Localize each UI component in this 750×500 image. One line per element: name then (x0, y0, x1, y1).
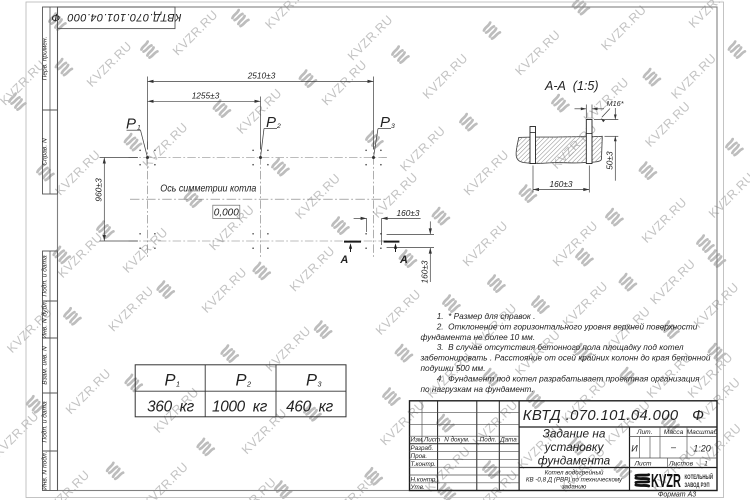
svg-text:И: И (631, 444, 638, 454)
svg-text:–: – (670, 442, 677, 452)
svg-text:Р: Р (165, 371, 176, 389)
svg-text:Перв. примен.: Перв. примен. (42, 36, 49, 80)
svg-text:Ось симметрии котла: Ось симметрии котла (160, 182, 256, 194)
svg-text:Р: Р (236, 371, 247, 389)
svg-text:ЗАВОД РЭП: ЗАВОД РЭП (685, 482, 710, 489)
svg-text:Формат А3: Формат А3 (658, 492, 696, 499)
svg-text:Пров.: Пров. (411, 453, 428, 460)
svg-text:4. Фундамент под котел разраб: 4. Фундамент под котел разрабатывает про… (437, 374, 700, 383)
svg-text:N докум.: N докум. (444, 436, 469, 444)
svg-text:Задание на: Задание на (543, 427, 606, 441)
svg-text:Подп.: Подп. (480, 436, 497, 444)
svg-text:Н.контр.: Н.контр. (411, 476, 438, 483)
svg-text:2: 2 (246, 379, 251, 388)
svg-text:3: 3 (318, 379, 322, 388)
svg-text:Дата: Дата (499, 437, 517, 444)
svg-text:Листов: Листов (668, 460, 694, 467)
svg-text:160±3: 160±3 (420, 260, 430, 283)
svg-text:установку: установку (544, 440, 605, 454)
svg-text:1000 кг: 1000 кг (212, 398, 268, 415)
svg-text:А: А (340, 254, 349, 266)
svg-text:50±3: 50±3 (605, 151, 615, 170)
svg-text:М16*: М16* (607, 99, 625, 108)
svg-text:2510±3: 2510±3 (247, 71, 276, 81)
svg-text:заданию: заданию (561, 484, 587, 491)
svg-text:Масса: Масса (664, 429, 684, 436)
svg-text:0,000: 0,000 (214, 208, 239, 219)
svg-text:Котел водогрейный: Котел водогрейный (545, 470, 604, 477)
svg-text:Утв.: Утв. (410, 484, 425, 491)
svg-text:1. * Размер для справок .: 1. * Размер для справок . (437, 312, 536, 321)
svg-text:Взам. инв. N: Взам. инв. N (42, 346, 49, 385)
svg-text:А-А (1:5): А-А (1:5) (544, 79, 599, 93)
svg-text:2. Отклонение от горизонтальн: 2. Отклонение от горизонтального уровня … (436, 322, 698, 331)
svg-text:160±3: 160±3 (549, 179, 572, 189)
svg-text:160±3: 160±3 (396, 208, 419, 218)
svg-text:подушки 500 мм.: подушки 500 мм. (421, 364, 486, 373)
svg-text:Масштаб: Масштаб (687, 428, 718, 436)
svg-text:по нагрузкам на фундамент.: по нагрузкам на фундамент. (421, 385, 534, 394)
svg-text:3: 3 (391, 123, 395, 130)
svg-text:Инв. N дубл.: Инв. N дубл. (41, 300, 49, 338)
svg-text:Справ. N: Справ. N (42, 138, 49, 166)
svg-text:фундамента: фундамента (538, 453, 611, 467)
svg-text:КВ -0,8 Д (РВР) по техническом: КВ -0,8 Д (РВР) по техническому (526, 477, 623, 484)
svg-text:3. В случае отсутствия бетонн: 3. В случае отсутствия бетонного пола пл… (437, 343, 684, 352)
svg-text:1255±3: 1255±3 (192, 91, 220, 101)
svg-text:1:20: 1:20 (693, 444, 711, 454)
svg-text:360 кг: 360 кг (147, 398, 194, 415)
svg-text:Лит.: Лит. (636, 429, 653, 436)
svg-text:Подп. и дата: Подп. и дата (41, 255, 49, 297)
svg-text:Разраб.: Разраб. (411, 444, 434, 452)
svg-text:фундамента не более 10 мм.: фундамента не более 10 мм. (421, 333, 536, 342)
svg-text:забетонировать . Расстояние от: забетонировать . Расстояние от осей край… (420, 354, 711, 363)
svg-text:1: 1 (704, 460, 708, 467)
svg-text:А: А (399, 254, 408, 266)
svg-text:460 кг: 460 кг (286, 398, 333, 415)
svg-text:Лист: Лист (634, 460, 652, 467)
svg-text:Т.контр.: Т.контр. (411, 461, 436, 468)
svg-text:Инв. N подл.: Инв. N подл. (41, 451, 49, 490)
svg-text:КОТЕЛЬНЫЙ: КОТЕЛЬНЫЙ (685, 472, 714, 481)
svg-text:KVZR: KVZR (651, 470, 681, 491)
svg-text:Изм.Лист: Изм.Лист (411, 437, 441, 444)
svg-text:КВТД .070.101.04.000 Ф: КВТД .070.101.04.000 Ф (523, 408, 705, 424)
svg-text:Подп. и дата: Подп. и дата (41, 401, 49, 443)
svg-text:960±3: 960±3 (94, 178, 104, 202)
svg-text:КВТД.070.101.04.000 Ф: КВТД.070.101.04.000 Ф (51, 11, 181, 23)
svg-text:1: 1 (176, 379, 180, 388)
svg-text:Р: Р (306, 371, 317, 389)
